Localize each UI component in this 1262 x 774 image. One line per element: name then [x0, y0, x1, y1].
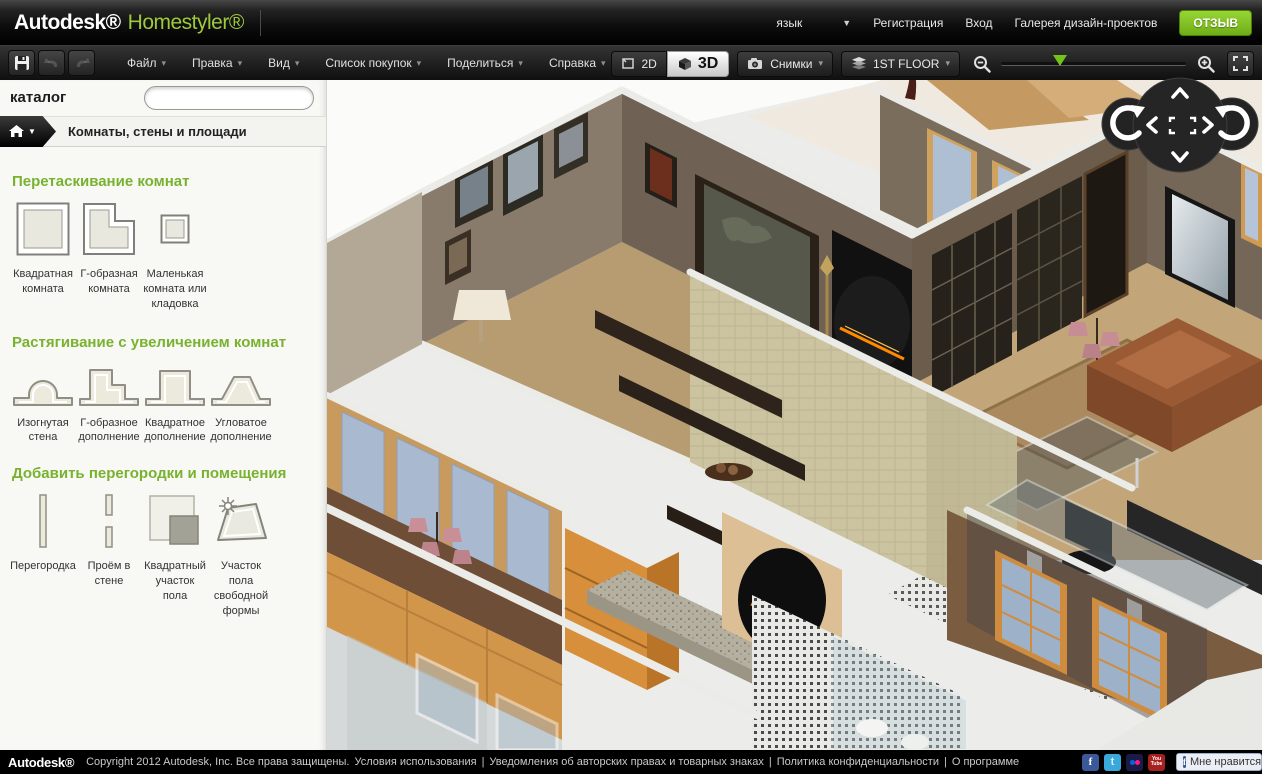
- zoom-slider[interactable]: [1001, 62, 1186, 66]
- app-logo: Autodesk® Homestyler®: [14, 11, 244, 35]
- feedback-button[interactable]: ОТЗЫВ: [1179, 10, 1252, 36]
- toolbar: Файл▾ Правка▾ Вид▾ Список покупок▾ Подел…: [0, 45, 1262, 80]
- redo-icon: [73, 55, 91, 71]
- zoom-out-button[interactable]: [968, 51, 995, 77]
- caret-down-icon: ▾: [518, 58, 523, 69]
- catalog-item-curved-wall[interactable]: Изогнутая стена: [10, 361, 76, 446]
- homestyler-logo: Homestyler®: [128, 11, 244, 35]
- caret-down-icon: ▾: [601, 58, 606, 69]
- footer-separator: |: [944, 756, 947, 768]
- copyright-text: Copyright 2012 Autodesk, Inc. Все права …: [86, 756, 349, 768]
- fullscreen-icon: [1233, 56, 1248, 71]
- view-3d-button[interactable]: 3D: [667, 51, 729, 77]
- undo-icon: [43, 55, 61, 71]
- section-heading: Перетаскивание комнат: [12, 173, 316, 190]
- home-caret-icon: ▼: [28, 127, 36, 136]
- footer-link-trademarks[interactable]: Уведомления об авторских правах и товарн…: [489, 756, 763, 768]
- menu-bar: Файл▾ Правка▾ Вид▾ Список покупок▾ Подел…: [117, 49, 616, 77]
- navigation-pad: [1097, 71, 1262, 183]
- footer-autodesk-logo: Autodesk®: [8, 755, 74, 770]
- redo-button[interactable]: [68, 50, 95, 76]
- snapshots-button[interactable]: Снимки ▾: [737, 51, 833, 77]
- language-selector[interactable]: язык ▼: [776, 16, 851, 30]
- partition-icon: [35, 493, 51, 549]
- facebook-mini-icon: f: [1183, 756, 1186, 768]
- angular-addition-icon: [210, 365, 272, 407]
- catalog-item-wall-opening[interactable]: Проём в стене: [76, 492, 142, 589]
- menu-file[interactable]: Файл▾: [117, 49, 176, 77]
- wall-opening-icon: [101, 493, 117, 549]
- layers-icon: [851, 57, 867, 70]
- breadcrumb-label: Комнаты, стены и площади: [68, 124, 247, 139]
- gallery-link[interactable]: Галерея дизайн-проектов: [1015, 16, 1158, 30]
- curved-wall-icon: [12, 365, 74, 407]
- breadcrumb-home-button[interactable]: ▼: [0, 116, 56, 147]
- login-link[interactable]: Вход: [965, 16, 992, 30]
- freeform-floor-icon: [212, 494, 270, 548]
- section-add-partitions: Добавить перегородки и помещения Перегор…: [0, 465, 326, 618]
- view-2d-button[interactable]: 2D: [611, 51, 666, 77]
- catalog-sidebar: каталог ▼ Комнаты, стены и площади: [0, 80, 327, 750]
- zoom-in-icon: [1197, 55, 1215, 73]
- catalog-item-l-shaped-room[interactable]: Г-образная комната: [76, 200, 142, 297]
- footer-separator: |: [769, 756, 772, 768]
- language-caret-icon[interactable]: ▼: [842, 18, 851, 28]
- undo-button[interactable]: [38, 50, 65, 76]
- save-button[interactable]: [8, 50, 35, 76]
- caret-down-icon: ▾: [945, 58, 950, 69]
- section-drag-rooms: Перетаскивание комнат Квадратная комната…: [0, 173, 326, 312]
- register-link[interactable]: Регистрация: [873, 16, 943, 30]
- footer-bar: Autodesk® Copyright 2012 Autodesk, Inc. …: [0, 750, 1262, 774]
- logo-divider: [260, 10, 261, 36]
- section-heading: Растягивание с увеличением комнат: [12, 334, 316, 351]
- caret-down-icon: ▾: [238, 58, 243, 69]
- caret-down-icon: ▾: [818, 58, 823, 69]
- small-room-icon: [160, 214, 190, 244]
- twitter-icon[interactable]: t: [1104, 754, 1121, 771]
- floor-selector[interactable]: 1ST FLOOR ▾: [841, 51, 960, 77]
- table-lamp: [453, 290, 511, 320]
- home-icon: [9, 125, 24, 138]
- section-heading: Добавить перегородки и помещения: [12, 465, 316, 482]
- zoom-slider-thumb[interactable]: [1053, 55, 1067, 66]
- catalog-search[interactable]: [144, 86, 314, 110]
- language-label[interactable]: язык: [776, 16, 802, 30]
- youtube-icon[interactable]: YouTube: [1148, 754, 1165, 771]
- catalog-item-square-floor[interactable]: Квадратный участок пола: [142, 492, 208, 604]
- 3d-viewport[interactable]: [327, 80, 1262, 750]
- top-bar: Autodesk® Homestyler® язык ▼ Регистрация…: [0, 0, 1262, 45]
- catalog-item-l-addition[interactable]: Г-образное дополнение: [76, 361, 142, 446]
- menu-edit[interactable]: Правка▾: [182, 49, 252, 77]
- footer-link-about[interactable]: О программе: [952, 756, 1019, 768]
- square-addition-icon: [144, 365, 206, 407]
- autodesk-logo: Autodesk®: [14, 11, 121, 35]
- 3d-box-icon: [678, 57, 692, 71]
- menu-view[interactable]: Вид▾: [258, 49, 309, 77]
- square-floor-icon: [148, 494, 202, 548]
- flickr-icon[interactable]: [1126, 754, 1143, 771]
- catalog-item-freeform-floor[interactable]: Участок пола свободной формы: [208, 492, 274, 618]
- catalog-item-square-room[interactable]: Квадратная комната: [10, 200, 76, 297]
- footer-link-terms[interactable]: Условия использования: [354, 756, 476, 768]
- 2d-plan-icon: [621, 57, 635, 70]
- catalog-title: каталог: [10, 89, 66, 106]
- footer-link-privacy[interactable]: Политика конфиденциальности: [777, 756, 939, 768]
- section-stretch-rooms: Растягивание с увеличением комнат Изогну…: [0, 334, 326, 446]
- caret-down-icon: ▾: [162, 58, 167, 69]
- search-input[interactable]: [145, 87, 314, 109]
- menu-help[interactable]: Справка▾: [539, 49, 616, 77]
- caret-down-icon: ▾: [417, 58, 422, 69]
- facebook-icon[interactable]: f: [1082, 754, 1099, 771]
- facebook-like-button[interactable]: f Мне нравится: [1176, 753, 1262, 771]
- breadcrumb: ▼ Комнаты, стены и площади: [0, 116, 326, 147]
- menu-share[interactable]: Поделиться▾: [437, 49, 533, 77]
- square-room-icon: [15, 201, 71, 257]
- catalog-item-partition[interactable]: Перегородка: [10, 492, 76, 574]
- catalog-item-square-addition[interactable]: Квадратное дополнение: [142, 361, 208, 446]
- save-icon: [14, 55, 30, 71]
- l-shaped-room-icon: [81, 201, 137, 257]
- homestyler-app: Autodesk® Homestyler® язык ▼ Регистрация…: [0, 0, 1262, 774]
- catalog-item-small-room[interactable]: Маленькая комната или кладовка: [142, 200, 208, 312]
- footer-separator: |: [482, 756, 485, 768]
- menu-shopping-list[interactable]: Список покупок▾: [315, 49, 431, 77]
- l-addition-icon: [78, 365, 140, 407]
- caret-down-icon: ▾: [295, 58, 300, 69]
- zoom-out-icon: [973, 55, 991, 73]
- catalog-item-angular-addition[interactable]: Угловатое дополнение: [208, 361, 274, 446]
- camera-icon: [747, 57, 764, 70]
